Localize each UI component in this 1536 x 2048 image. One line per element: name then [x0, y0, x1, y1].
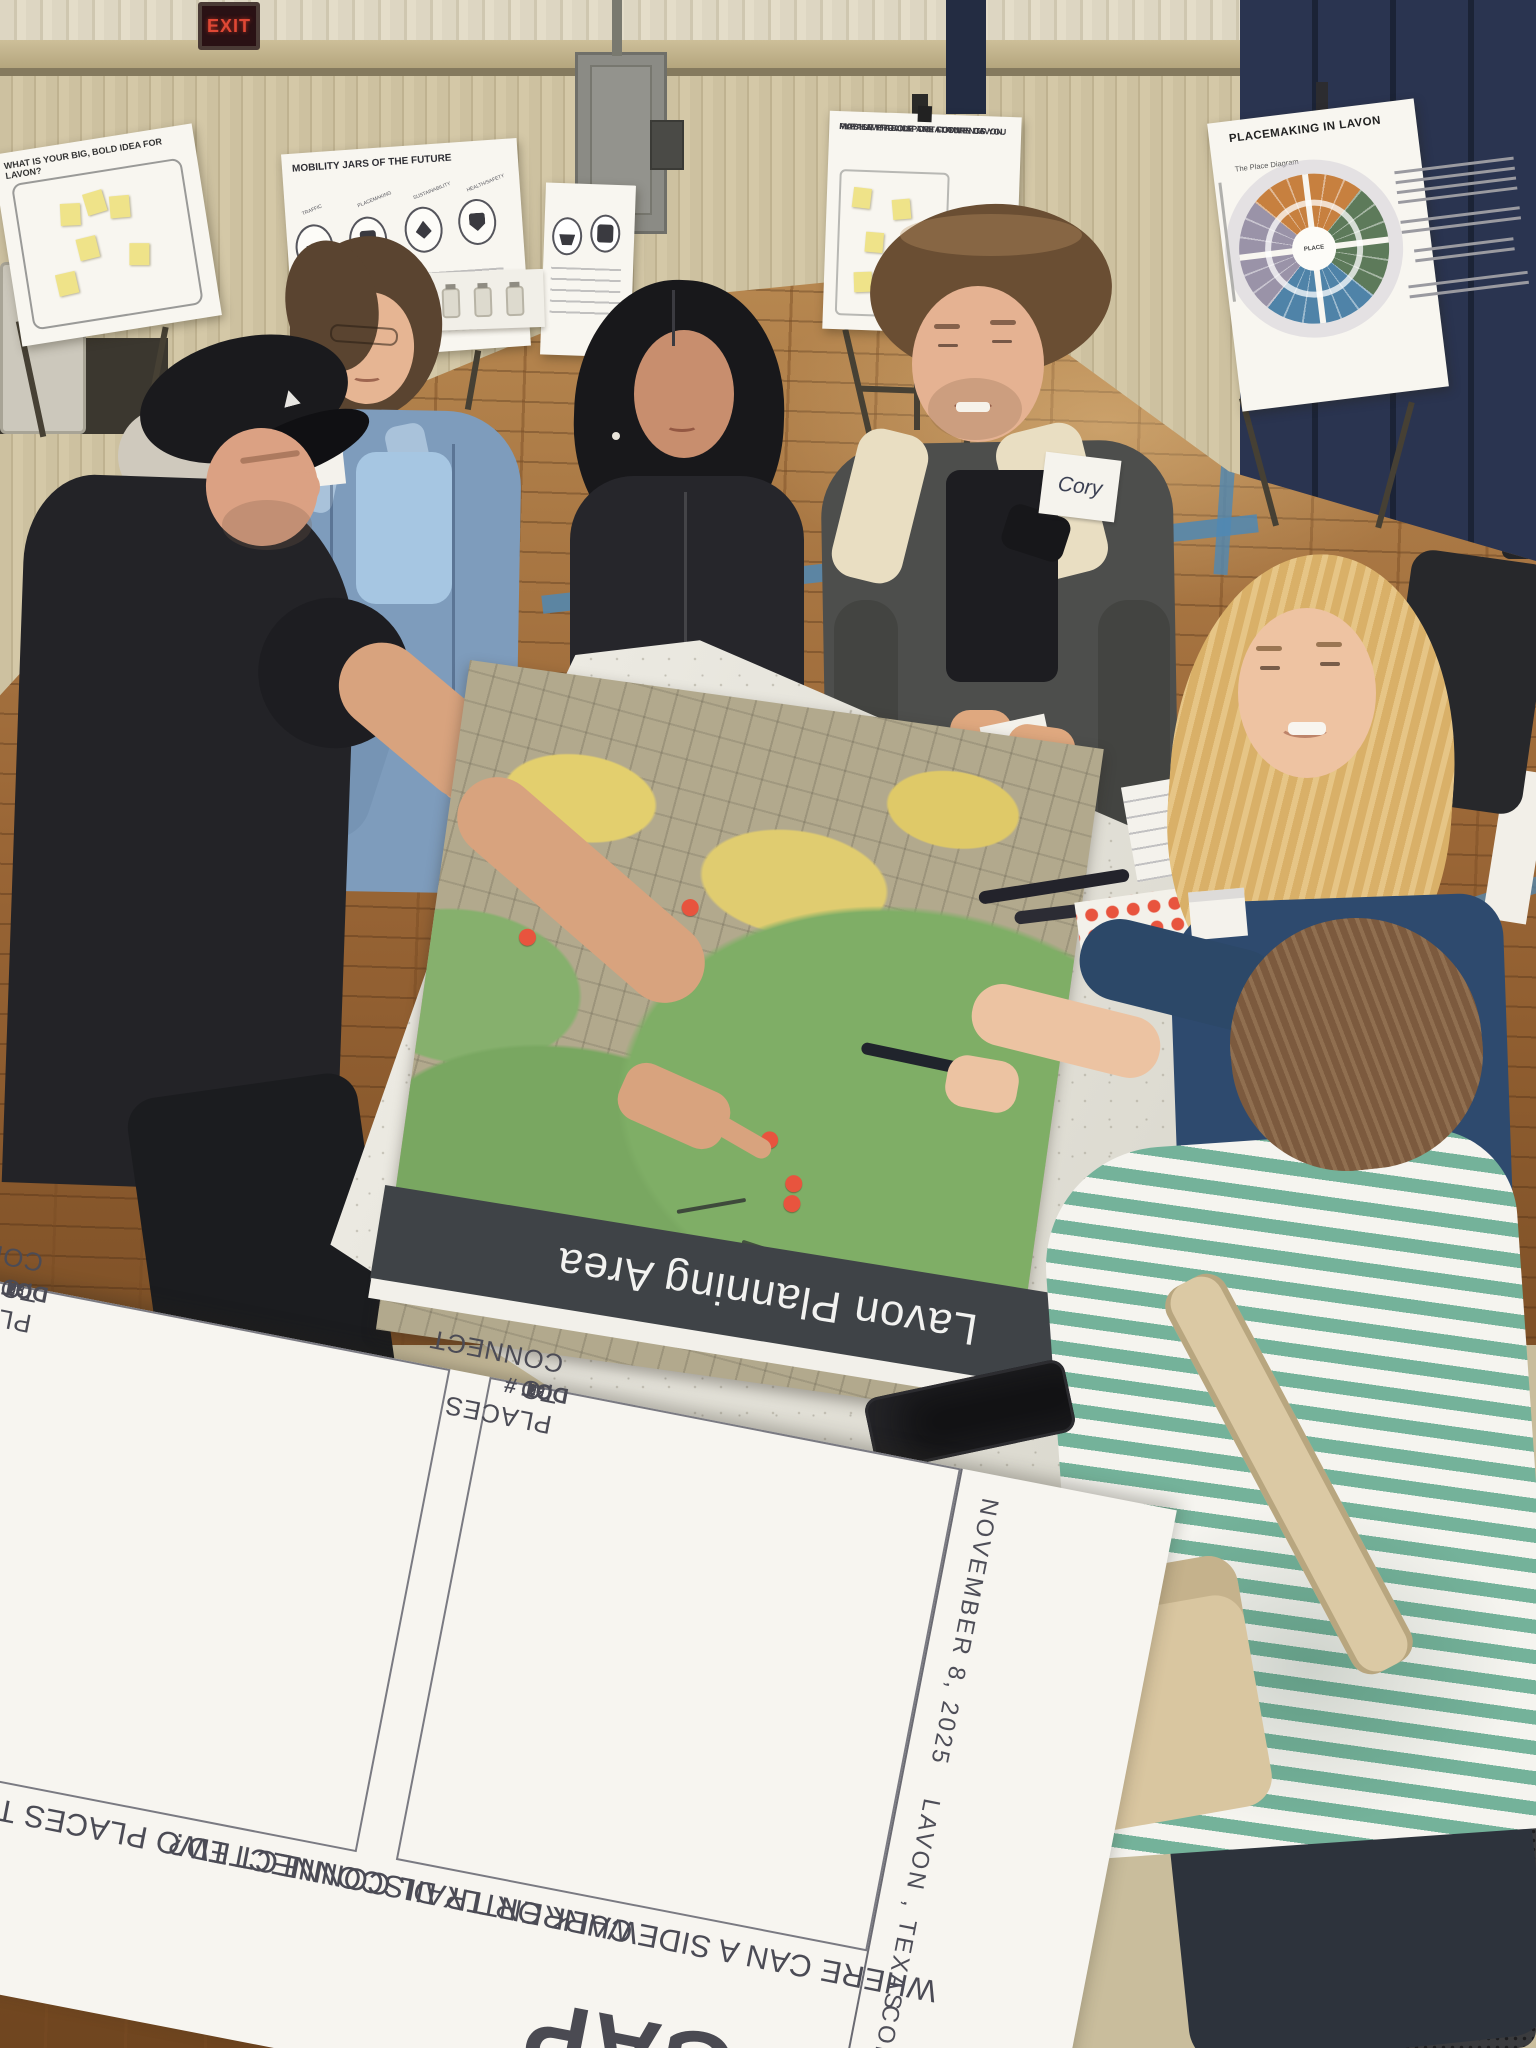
cory-name-tag-text: Cory: [1057, 472, 1104, 501]
gym-wall-pad-small: [946, 0, 986, 114]
place-diagram-label: The Place Diagram: [1234, 157, 1299, 174]
name-tag: [1188, 888, 1248, 941]
denim-woman-shirt: [356, 452, 452, 604]
cory-eyebrow: [990, 320, 1016, 325]
sticky-note: [60, 203, 81, 226]
voting-jar: [474, 287, 493, 318]
sticky-note: [852, 187, 872, 209]
pointing-man-nose: [296, 472, 320, 502]
jar-icon: [552, 217, 583, 256]
jar-category-label: SUSTAINABILITY: [412, 181, 451, 202]
voting-jar: [442, 288, 461, 319]
sticky-note: [864, 232, 884, 253]
blonde-woman-eyebrow: [1316, 642, 1342, 647]
leaf-icon: [415, 220, 432, 239]
pointing-man-stubble: [222, 500, 312, 550]
shield-icon: [469, 212, 486, 231]
gap-table-right: 6968676665646362616059585756555453525150…: [396, 1377, 961, 1952]
dark-haired-woman-face: [634, 330, 734, 458]
sticky-note: [892, 199, 912, 220]
sustainability-jar-icon: [403, 205, 444, 254]
sticky-note: [109, 195, 131, 219]
cory-teeth: [956, 402, 990, 412]
earring: [612, 432, 620, 440]
vehicle-icon: [559, 227, 576, 246]
jar-category-label: PLACEMAKING: [357, 190, 393, 209]
blonde-woman-teeth: [1288, 722, 1326, 735]
dark-haired-woman-smile: [666, 420, 698, 432]
blonde-woman-eye: [1260, 666, 1280, 670]
gap-table-header: PLACES TO CONNECT DOT #: [480, 1379, 491, 1436]
mobility-jars-title: MOBILITY JARS OF THE FUTURE: [292, 153, 452, 175]
gap-poster-event: COMMUNITY FORUM: [823, 2002, 905, 2048]
red-dot-sticker: [782, 1194, 801, 1213]
comments-poster-line: MOBILITY/TRANSPORTATION IN LAVON.: [839, 121, 1005, 138]
jar-category-label: HEALTH/SAFETY: [466, 173, 506, 194]
cory-name-tag: Cory: [1039, 452, 1122, 523]
placemaking-title: PLACEMAKING IN LAVON: [1228, 115, 1381, 146]
binder-clip: [918, 106, 933, 122]
red-dot-sticker: [784, 1174, 803, 1193]
pedestrian-icon: [597, 224, 614, 243]
sticky-note: [129, 243, 149, 265]
hair-part-line: [672, 290, 675, 346]
cory-eyebrow: [934, 324, 960, 329]
red-dot-sticker: [518, 928, 537, 947]
cory-hair-highlight: [900, 214, 1082, 256]
exit-sign-text: EXIT: [207, 16, 251, 37]
blonde-woman-eyebrow: [1256, 646, 1282, 651]
gap-table-left: 9089888786858483828180797877767574737271…: [0, 1276, 450, 1852]
speech-bubble-outline: [11, 158, 204, 331]
cory-eye: [992, 340, 1012, 343]
dot-header-cell: DOT #: [491, 1381, 581, 1399]
cory-eye: [938, 344, 958, 347]
big-idea-poster: WHAT IS YOUR BIG, BOLD IDEA FOR LAVON?: [0, 123, 222, 346]
jar-icon: [590, 214, 621, 253]
health-safety-jar-icon: [457, 198, 498, 247]
place-diagram-wheel: PLACE: [1231, 165, 1398, 332]
blonde-woman-eye: [1320, 662, 1340, 666]
voting-jar: [506, 286, 525, 317]
conduit-pipe: [612, 0, 622, 56]
blonde-woman-face: [1238, 608, 1376, 778]
placemaking-poster: PLACEMAKING IN LAVON The Place Diagram P…: [1207, 98, 1449, 411]
wall-junction-box: [650, 120, 684, 170]
jar-category-label: TRAFFIC: [301, 204, 323, 217]
exit-sign: EXIT: [198, 2, 260, 50]
red-dot-sticker: [681, 898, 700, 917]
marker-scribble: [677, 1198, 747, 1214]
denim-woman-smile: [352, 372, 382, 382]
photo-scene: EXIT WHAT IS YOUR BIG, BOLD IDEA FOR LAV…: [0, 0, 1536, 2048]
